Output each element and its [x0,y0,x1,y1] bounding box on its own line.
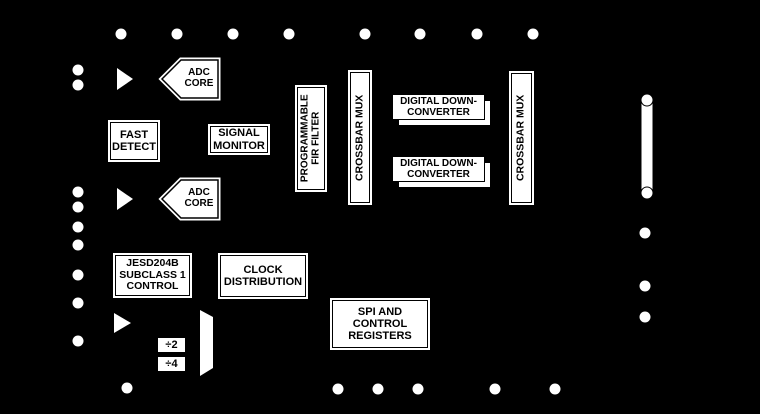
signal-monitor-block: SIGNALMONITOR [210,126,268,153]
pin-dot [73,270,84,281]
pin-dot [73,336,84,347]
block-diagram: ADCCORE ADCCORE FASTDETECT SIGNALMONITOR… [0,0,760,414]
fast-detect-block: FASTDETECT [110,122,158,160]
pin-dot [73,298,84,309]
adc-core-b-label: ADCCORE [179,180,219,218]
pin-dot [528,29,539,40]
crossbar-mux-2-block: CROSSBAR MUX [511,73,532,203]
pin-dot [116,29,127,40]
diagram-graphics [0,0,760,414]
ddc-2-block: DIGITAL DOWN-CONVERTER [392,156,485,182]
crossbar-mux-1-block: CROSSBAR MUX [350,72,370,203]
adc-core-a-label: ADCCORE [179,60,219,98]
pin-dot [73,187,84,198]
pin-dot [228,29,239,40]
pin-dot [73,202,84,213]
pin-dot [640,281,651,292]
divide-by-4-block: ÷4 [158,357,185,371]
pin-dot [73,65,84,76]
pin-dot [333,384,344,395]
clock-distribution-block: CLOCKDISTRIBUTION [220,255,306,297]
pin-dot [415,29,426,40]
pin-dot [640,228,651,239]
pin-dot [640,312,651,323]
pin-dot [122,383,133,394]
clock-mux-icon [200,310,213,376]
pin-dot [73,240,84,251]
pin-dot [172,29,183,40]
pin-dot [73,222,84,233]
buffer-amp-icon [117,68,133,90]
jesd204b-control-block: JESD204BSUBCLASS 1CONTROL [115,255,190,296]
serdes-lane-bar [641,94,653,199]
clock-buffer-icon [114,313,131,333]
pin-dot [73,80,84,91]
pin-dot [472,29,483,40]
spi-control-registers-block: SPI ANDCONTROLREGISTERS [332,300,428,348]
pin-dot [413,384,424,395]
pin-dot [360,29,371,40]
ddc-1-block: DIGITAL DOWN-CONVERTER [392,94,485,120]
pin-dot [490,384,501,395]
pin-dot [373,384,384,395]
pin-dot [550,384,561,395]
pin-dot [284,29,295,40]
divide-by-2-block: ÷2 [158,338,185,352]
buffer-amp-icon [117,188,133,210]
programmable-fir-filter-block: PROGRAMMABLEFIR FILTER [297,87,325,190]
